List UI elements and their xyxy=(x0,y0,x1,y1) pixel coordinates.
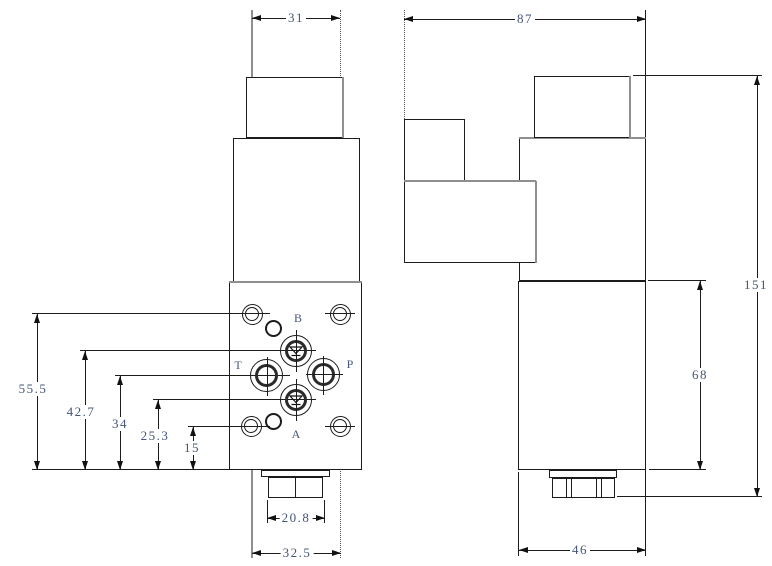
side-box-right-shadow xyxy=(535,181,537,263)
dim-151-label: 151 xyxy=(742,278,770,292)
side-solenoid-tube xyxy=(519,138,646,281)
dim-68-label: 68 xyxy=(690,368,710,382)
side-coil-block xyxy=(534,76,631,138)
dim-151-arrow-bottom xyxy=(754,488,760,497)
side-valve-body xyxy=(518,281,646,470)
ext-87-right xyxy=(645,10,646,138)
side-connector-divider-4 xyxy=(601,478,602,498)
side-view: 87 151 68 46 xyxy=(0,0,772,566)
dim-68-arrow-top xyxy=(697,281,703,290)
ext-151-top xyxy=(633,75,762,76)
dim-46-arrow-left xyxy=(519,547,528,553)
side-connector-divider-3 xyxy=(596,478,597,498)
side-connector-box xyxy=(404,181,536,263)
ext-46-right xyxy=(645,470,646,556)
side-connector-divider-2 xyxy=(571,478,572,498)
dim-151-arrow-top xyxy=(754,76,760,85)
side-coil-edge-shadow xyxy=(629,76,631,138)
dim-68-arrow-bottom xyxy=(697,461,703,470)
ext-46-left xyxy=(518,472,519,556)
side-connector-lip xyxy=(549,470,617,478)
dim-87-arrow-right xyxy=(637,16,646,22)
side-din-connector xyxy=(552,478,615,498)
valve-dimension-drawing: B T P A 31 55.5 42.7 34 25.3 15 xyxy=(0,0,772,566)
ext-87-left xyxy=(404,10,405,119)
dim-46-arrow-right xyxy=(637,547,646,553)
ext-151-bottom xyxy=(617,496,762,497)
dim-87-label: 87 xyxy=(515,12,535,26)
dim-87-arrow-left xyxy=(404,16,413,22)
dim-46-label: 46 xyxy=(570,543,590,557)
side-connector-top xyxy=(404,119,465,181)
side-connector-divider-1 xyxy=(566,478,567,498)
side-box-top-shadow xyxy=(404,180,536,182)
